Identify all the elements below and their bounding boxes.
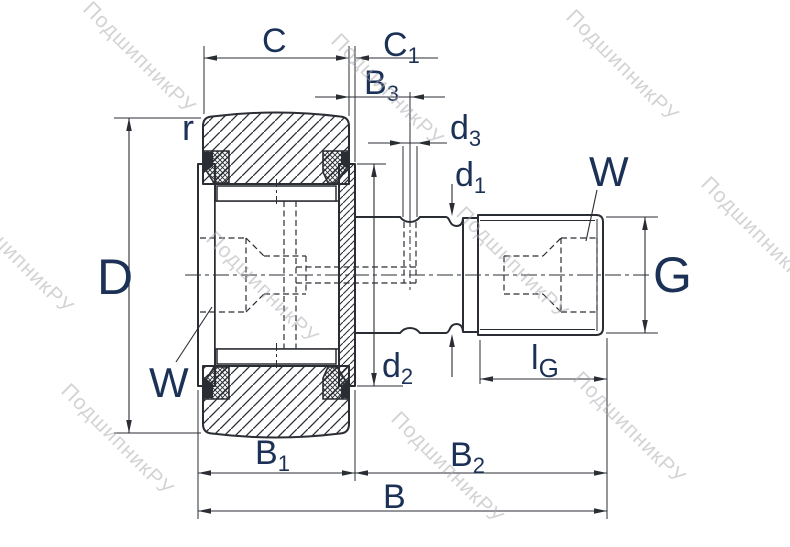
- svg-text:D: D: [97, 249, 133, 305]
- dimension-B: B: [198, 478, 607, 516]
- dim-label-G: G: [653, 247, 692, 303]
- svg-text:C: C: [262, 22, 287, 60]
- svg-text:d2: d2: [382, 347, 413, 389]
- dimension-d2: d2: [371, 164, 413, 389]
- dimension-B2: B2: [355, 436, 607, 478]
- stud-pin-bottom-profile: [355, 324, 463, 333]
- watermark: ПодшипникРУ: [561, 5, 683, 127]
- watermark: ПодшипникРУ: [568, 367, 690, 489]
- dim-label-D: D: [97, 249, 133, 305]
- dimension-G: G: [642, 217, 692, 333]
- dim-label-C: C: [262, 22, 287, 60]
- dim-label-d3: d: [450, 109, 469, 147]
- dimension-C: C: [204, 22, 349, 61]
- svg-text:W: W: [589, 148, 629, 195]
- dim-label-B1: B: [255, 434, 278, 472]
- dim-label-C1: C: [383, 26, 408, 64]
- dim-label-B: B: [383, 478, 406, 516]
- svg-text:d1: d1: [455, 156, 486, 198]
- dim-label-d1: d: [455, 156, 474, 194]
- dim-label-d2: d: [382, 347, 401, 385]
- watermark: ПодшипникРУ: [78, 0, 200, 119]
- watermark: ПодшипникРУ: [0, 197, 78, 319]
- svg-text:lG: lG: [531, 339, 559, 383]
- svg-text:W: W: [149, 359, 189, 406]
- svg-text:C1: C1: [383, 26, 420, 68]
- dim-label-lG: l: [531, 339, 539, 377]
- dimension-D: D: [97, 118, 133, 433]
- watermark: ПодшипникРУ: [696, 172, 790, 294]
- dim-label-W-flange: W: [149, 359, 189, 406]
- dim-label-W-thread: W: [589, 148, 629, 195]
- svg-text:G: G: [653, 247, 692, 303]
- svg-text:B1: B1: [255, 434, 290, 476]
- stud-pin-top-profile: [355, 217, 463, 226]
- page: C C1 B3 d3 d1 d2 D G: [0, 0, 790, 547]
- svg-text:B: B: [383, 478, 406, 516]
- dimension-B1: B1: [198, 434, 355, 476]
- bearing-drawing: C C1 B3 d3 d1 d2 D G: [0, 0, 790, 547]
- svg-text:d3: d3: [450, 109, 481, 151]
